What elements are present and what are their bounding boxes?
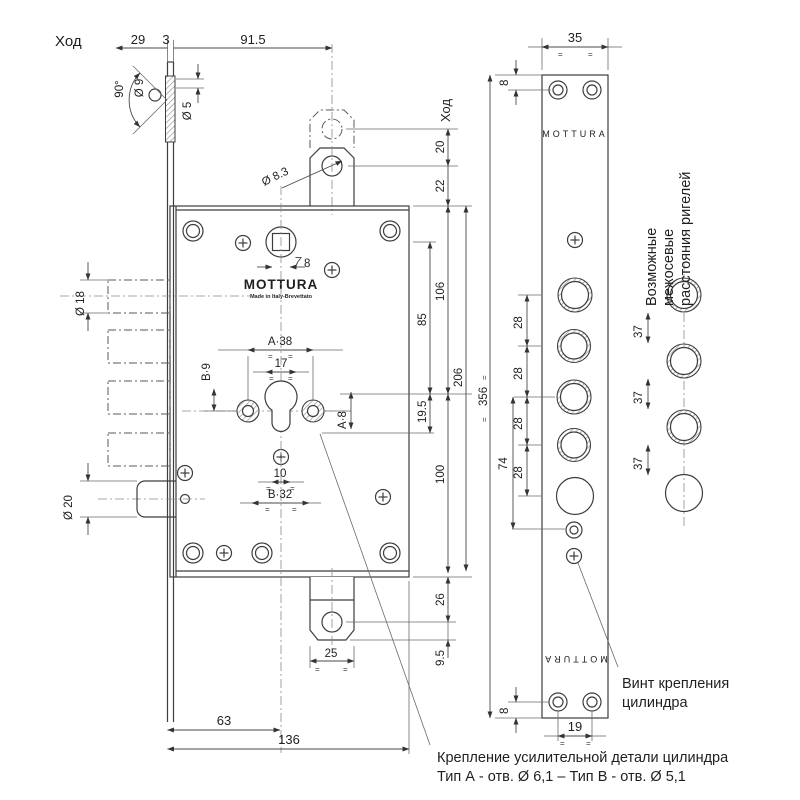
rod-pin: [149, 89, 161, 101]
dim-28-2: 28: [513, 367, 525, 380]
bolt-note-line1: Возможные: [644, 228, 660, 306]
eq-mark: =: [586, 739, 591, 748]
dim-90deg: 90°: [114, 80, 126, 97]
dim-20: 20: [435, 141, 447, 154]
dim-106: 106: [435, 282, 447, 301]
deadbolts-left: Ø 18 Ø 20: [63, 262, 176, 535]
dim-356: 356: [478, 387, 490, 406]
dim-dia9: Ø 9: [134, 79, 146, 98]
rod-hatched-section: [166, 76, 176, 142]
dim-37-2: 37: [633, 391, 645, 404]
faceplate-brand-bottom: MOTTURA: [542, 654, 608, 664]
faceplate-bottom-screws: [549, 693, 601, 711]
cylinder-side-hole-left: [237, 400, 259, 422]
lock-technical-drawing: 90° Ø 9 Ø 5 Ход 29 3 91.5 Ø 8.3 Ход 20 2: [0, 0, 800, 800]
dim-19_5: 19.5: [417, 401, 429, 423]
technical-drawing-page: 90° Ø 9 Ø 5 Ход 29 3 91.5 Ø 8.3 Ход 20 2: [0, 0, 800, 800]
dim-28-4: 28: [513, 466, 525, 479]
dim-35: 35: [568, 30, 582, 45]
dim-b32: B·32: [268, 489, 292, 501]
dim-dia8_3: Ø 8.3: [260, 166, 291, 189]
dim-85: 85: [417, 313, 429, 326]
lock-body-view: 7 8 MOTTURA Made in Italy-Brevettato A·3…: [60, 186, 409, 753]
dim-100: 100: [435, 465, 447, 484]
faceplate-phillips-bottom: [567, 549, 582, 564]
dim-dia18: Ø 18: [75, 291, 87, 316]
spindle-hole: 7 8: [257, 227, 310, 270]
faceplate-latch-hole: [557, 478, 594, 515]
faceplate-top-screws: [549, 81, 601, 99]
bottom-tab: 25 = =: [310, 568, 354, 674]
eq-mark: =: [315, 665, 320, 674]
dim-a38: A·38: [268, 336, 292, 348]
faceplate-bolt-holes: [557, 278, 594, 515]
dim-37-1: 37: [633, 325, 645, 338]
screw-note-leader: [578, 563, 618, 667]
eq-mark: =: [560, 739, 565, 748]
dim-91_5: 91.5: [240, 32, 265, 47]
dim-square-8: 8: [304, 258, 310, 270]
dim-10: 10: [274, 468, 287, 480]
bolt-spacing-note: Возможные межосевые расстояния ригелей: [644, 172, 694, 306]
cylinder-screw-hole: [566, 522, 582, 538]
eq-mark: =: [288, 374, 293, 383]
dim-square-7: 7: [294, 254, 302, 269]
top-dimensions: Ход 29 3 91.5: [55, 32, 332, 62]
dim-17: 17: [275, 358, 288, 370]
dim-a8: A·8: [337, 411, 349, 429]
bolt-spacing-view: 37 37 37 Возможные межосевые расстояния …: [633, 172, 703, 527]
faceplate-brand-top: MOTTURA: [542, 129, 608, 139]
label-travel-top: Ход: [55, 33, 82, 50]
dim-37-3: 37: [633, 457, 645, 470]
dim-dia5: Ø 5: [182, 102, 194, 121]
faceplate-view: MOTTURA MOTTURA 35 = =: [478, 30, 729, 748]
dim-25: 25: [325, 648, 338, 660]
eq-mark: =: [288, 352, 293, 361]
eq-mark: =: [588, 50, 593, 59]
dim-dia20: Ø 20: [63, 495, 75, 520]
dim-28-1: 28: [513, 316, 525, 329]
label-travel-right: Ход: [438, 99, 453, 122]
dim-136: 136: [278, 732, 300, 747]
eq-mark: =: [480, 375, 489, 380]
bolt-note-line2: межосевые: [661, 229, 677, 306]
dim-8-bottom: 8: [499, 708, 511, 714]
dim-28-3: 28: [513, 417, 525, 430]
dim-22: 22: [435, 180, 447, 193]
tab-travel-dims: Ход 20 22: [346, 99, 458, 206]
dim-9_5: 9.5: [435, 650, 447, 666]
eq-mark: =: [343, 665, 348, 674]
top-tab: Ø 8.3: [260, 44, 354, 215]
dim-8-top: 8: [499, 80, 511, 86]
dim-29: 29: [131, 32, 145, 47]
reinforce-note-line1: Крепление усилительной детали цилиндра: [437, 750, 729, 766]
eq-mark: =: [265, 505, 270, 514]
eq-mark: =: [269, 374, 274, 383]
dim-206: 206: [453, 368, 465, 387]
reinforce-note-line2: Тип А - отв. Ø 6,1 – Тип В - отв. Ø 5,1: [437, 769, 686, 785]
cylinder-side-hole-right: [302, 400, 324, 422]
bolt-note-line3: расстояния ригелей: [678, 172, 694, 306]
dim-63: 63: [217, 713, 231, 728]
screw-note-line2: цилиндра: [622, 695, 688, 711]
faceplate-phillips-top: [568, 233, 583, 248]
bottom-dimensions: 63 136: [168, 581, 410, 754]
dim-26: 26: [435, 593, 447, 606]
dim-3: 3: [162, 32, 169, 47]
dim-b9: B·9: [201, 363, 213, 381]
dim-19: 19: [568, 719, 582, 734]
eq-mark: =: [558, 50, 563, 59]
eq-mark: =: [292, 505, 297, 514]
eq-mark: =: [480, 417, 489, 422]
dim-74: 74: [498, 457, 510, 470]
connecting-rod: [149, 62, 175, 722]
screw-note-line1: Винт крепления: [622, 676, 729, 692]
eq-mark: =: [268, 352, 273, 361]
cylinder-keyhole: [265, 381, 297, 432]
